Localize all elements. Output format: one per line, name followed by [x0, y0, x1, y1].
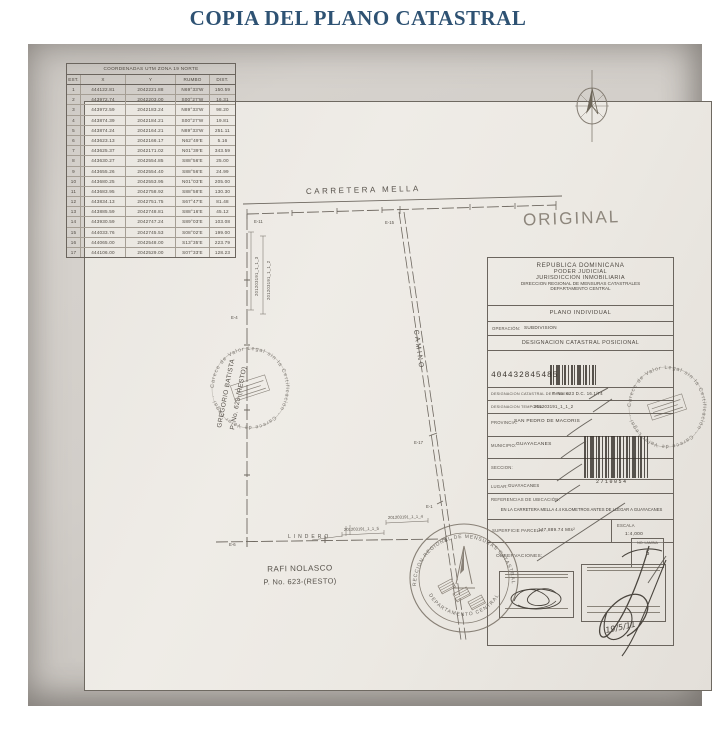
- superficie-value: 147,889.74 Mts²: [538, 527, 575, 532]
- table-row: 14443930.592042747.24S89°03'E103.08: [67, 216, 235, 226]
- table-cell: 2042554.40: [126, 167, 176, 176]
- table-cell: N62°49'E: [176, 136, 210, 145]
- table-row: 11443683.952042758.92S88°58'E130.30: [67, 186, 235, 196]
- table-row: 9443655.262042554.40S88°56'E24.99: [67, 166, 235, 176]
- table-row: 6443623.132042166.17N62°49'E5.16: [67, 135, 235, 145]
- table-cell: 444106.00: [81, 248, 126, 257]
- table-row: 10443680.252042553.95N01°03'E205.00: [67, 176, 235, 186]
- barcode-row: 404432845485: [488, 351, 673, 388]
- table-cell: 2042748.81: [126, 207, 176, 216]
- table-cell: 443655.26: [81, 167, 126, 176]
- table-cell: 2042164.21: [126, 126, 176, 135]
- table-cell: 10: [67, 177, 81, 186]
- table-cell: N89°33'W: [176, 126, 210, 135]
- table-cell: 150.59: [210, 85, 235, 94]
- coords-table-body: 1444122.812042221.88N69°33'W150.59244397…: [67, 85, 235, 257]
- origen-row: DESIGNACION CATASTRAL DE ORIGEN: P. No. …: [488, 388, 673, 401]
- signature-caption-line: [587, 570, 660, 571]
- table-cell: 443630.27: [81, 156, 126, 165]
- barcode-large: [584, 436, 648, 478]
- table-cell: 2042758.92: [126, 187, 176, 196]
- table-row: 2443972.742042203.00S00°27'W16.31: [67, 94, 235, 104]
- table-cell: 2042751.75: [126, 197, 176, 206]
- table-cell: 2: [67, 95, 81, 104]
- original-watermark: ORIGINAL: [523, 208, 610, 231]
- table-cell: 45.12: [210, 207, 235, 216]
- table-cell: S88°58'E: [176, 187, 210, 196]
- table-cell: 443625.37: [81, 146, 126, 155]
- table-cell: 2042183.24: [126, 105, 176, 114]
- plan-type-row: PLANO INDIVIDUAL: [488, 306, 673, 322]
- provincia-value: SAN PEDRO DE MACORIS: [514, 419, 580, 424]
- header-line: DEPARTAMENTO CENTRAL: [488, 286, 673, 291]
- table-cell: 443683.95: [81, 187, 126, 196]
- table-cell: 223.79: [210, 238, 235, 247]
- table-row: 3443972.592042183.24N89°33'W98.20: [67, 104, 235, 114]
- table-cell: EST.: [67, 75, 81, 84]
- table-row: 15444033.762042745.53S08°02'E199.00: [67, 227, 235, 237]
- table-cell: 11: [67, 187, 81, 196]
- table-cell: 128.23: [210, 248, 235, 257]
- table-cell: S07°33'E: [176, 248, 210, 257]
- table-cell: 2042529.00: [126, 248, 176, 257]
- table-cell: 9: [67, 167, 81, 176]
- table-cell: 15: [67, 228, 81, 237]
- table-row: 4443874.392042184.21S00°27'W19.81: [67, 115, 235, 125]
- page: COPIA DEL PLANO CATASTRAL COORDENADAS UT…: [0, 0, 716, 739]
- table-cell: 443834.13: [81, 197, 126, 206]
- operacion-label: OPERACIÓN:: [492, 326, 520, 331]
- table-cell: 2042554.85: [126, 156, 176, 165]
- table-cell: RUMBO: [176, 75, 210, 84]
- table-row: 13443885.592042748.81S88°16'E45.12: [67, 206, 235, 216]
- designacion-title: DESIGNACION CATASTRAL POSICIONAL: [488, 340, 673, 346]
- table-cell: S00°27'W: [176, 116, 210, 125]
- table-cell: 7: [67, 146, 81, 155]
- table-row: 8443630.272042554.85S88°56'E25.00: [67, 155, 235, 165]
- table-cell: 3: [67, 105, 81, 114]
- coords-table-header: EST.XYRUMBODIST.: [67, 75, 235, 85]
- table-cell: 444033.76: [81, 228, 126, 237]
- designacion-row: DESIGNACION CATASTRAL POSICIONAL: [488, 336, 673, 351]
- table-cell: N01°03'E: [176, 177, 210, 186]
- superficie-label: SUPERFICIE PARCELA:: [492, 528, 544, 533]
- table-cell: 5.16: [210, 136, 235, 145]
- escala-label: ESCALA: [617, 523, 635, 528]
- municipio-label: MUNICIPIO:: [491, 443, 516, 448]
- table-cell: 2042171.02: [126, 146, 176, 155]
- table-row: 1444122.812042221.88N69°33'W150.59: [67, 85, 235, 94]
- table-cell: N69°33'W: [176, 85, 210, 94]
- coordinates-table: COORDENADAS UTM ZONA 19 NORTE EST.XYRUMB…: [66, 63, 236, 258]
- escala-divider: [611, 520, 612, 543]
- panel-header: REPUBLICA DOMINICANA PODER JUDICIAL JURI…: [488, 258, 673, 306]
- table-cell: Y: [126, 75, 176, 84]
- table-cell: S08°02'E: [176, 228, 210, 237]
- lugar-label: LUGAR:: [491, 484, 508, 489]
- table-cell: 5: [67, 126, 81, 135]
- table-cell: X: [81, 75, 126, 84]
- seccion-label: SECCION:: [491, 465, 513, 470]
- table-cell: 19.81: [210, 116, 235, 125]
- signature-box-right: [581, 564, 666, 622]
- table-cell: 2042221.88: [126, 85, 176, 94]
- table-cell: S88°56'E: [176, 156, 210, 165]
- table-cell: 2042553.95: [126, 177, 176, 186]
- plan-type: PLANO INDIVIDUAL: [488, 310, 673, 316]
- table-cell: 443680.25: [81, 177, 126, 186]
- table-row: 5443874.242042164.21N89°33'W251.11: [67, 125, 235, 135]
- table-cell: 2042747.24: [126, 217, 176, 226]
- table-cell: 12: [67, 197, 81, 206]
- lamina-value: 5: [632, 550, 663, 557]
- signature-name-line: [505, 608, 568, 609]
- temporal-value: 201203191_1_1_2: [534, 404, 573, 409]
- table-cell: N01°39'E: [176, 146, 210, 155]
- lugar-row: LUGAR: GUAYACANES: [488, 480, 673, 494]
- table-cell: 2042745.53: [126, 228, 176, 237]
- barcode-large-number: 2710054: [596, 479, 628, 485]
- signature-box-left: [499, 571, 574, 618]
- operacion-value: SUBDIVISION: [524, 325, 557, 330]
- table-row: 17444106.002042529.00S07°33'E128.23: [67, 247, 235, 257]
- signature-caption-line: [505, 577, 568, 578]
- table-cell: 6: [67, 136, 81, 145]
- barcode-number: 404432845485: [491, 371, 558, 380]
- table-cell: 444065.00: [81, 238, 126, 247]
- table-cell: 443930.59: [81, 217, 126, 226]
- observaciones-label: OBSERVACIONES:: [496, 554, 543, 559]
- origen-value: P. No. 623 D.C. 16.1/74: [552, 391, 603, 396]
- table-cell: S88°16'E: [176, 207, 210, 216]
- table-cell: 2042184.21: [126, 116, 176, 125]
- signature-name-line: [587, 606, 660, 607]
- table-cell: 16: [67, 238, 81, 247]
- header-line: REPUBLICA DOMINICANA: [488, 262, 673, 269]
- table-cell: 17: [67, 248, 81, 257]
- referencias-label: REFERENCIAS DE UBICACIÓN:: [491, 497, 560, 502]
- table-cell: 1: [67, 85, 81, 94]
- table-cell: 343.59: [210, 146, 235, 155]
- table-cell: 98.20: [210, 105, 235, 114]
- barcode-small: [550, 365, 598, 385]
- table-cell: 443972.59: [81, 105, 126, 114]
- page-title: COPIA DEL PLANO CATASTRAL: [0, 6, 716, 31]
- table-cell: S13°35'E: [176, 238, 210, 247]
- escala-value: 1:4,000: [625, 532, 643, 537]
- table-cell: 444122.81: [81, 85, 126, 94]
- signature-name-line: [587, 612, 660, 613]
- table-cell: 4: [67, 116, 81, 125]
- table-row: 12443834.132042751.75S67°47'E81.48: [67, 196, 235, 206]
- table-cell: 81.48: [210, 197, 235, 206]
- table-cell: 24.99: [210, 167, 235, 176]
- temporal-row: DESIGNACION TEMPORAL: 201203191_1_1_2: [488, 401, 673, 414]
- table-cell: 199.00: [210, 228, 235, 237]
- table-cell: 443623.13: [81, 136, 126, 145]
- lugar-value: GUAYACANES: [508, 483, 539, 488]
- table-cell: 2042548.00: [126, 238, 176, 247]
- table-cell: 25.00: [210, 156, 235, 165]
- table-cell: S00°27'W: [176, 95, 210, 104]
- table-row: 16444065.002042548.00S13°35'E223.79: [67, 237, 235, 247]
- table-cell: 251.11: [210, 126, 235, 135]
- table-cell: S67°47'E: [176, 197, 210, 206]
- table-cell: S88°56'E: [176, 167, 210, 176]
- signature-caption-line: [505, 574, 568, 575]
- table-cell: 14: [67, 217, 81, 226]
- info-panel: REPUBLICA DOMINICANA PODER JUDICIAL JURI…: [487, 257, 674, 646]
- operacion-row: OPERACIÓN: SUBDIVISION: [488, 322, 673, 336]
- referencias-value: EN LA CARRETERA MELLA 4.4 KILOMETROS ANT…: [490, 507, 673, 512]
- signature-caption-line: [587, 567, 660, 568]
- coordinates-table-title: COORDENADAS UTM ZONA 19 NORTE: [67, 64, 235, 75]
- table-cell: 2042203.00: [126, 95, 176, 104]
- table-cell: 443874.24: [81, 126, 126, 135]
- table-cell: DIST.: [210, 75, 235, 84]
- table-cell: 13: [67, 207, 81, 216]
- table-cell: 443972.74: [81, 95, 126, 104]
- table-cell: 205.00: [210, 177, 235, 186]
- table-cell: 130.30: [210, 187, 235, 196]
- table-cell: 103.08: [210, 217, 235, 226]
- lamina-label: NO. LAMINA: [632, 541, 663, 545]
- table-cell: 2042166.17: [126, 136, 176, 145]
- referencias-row: REFERENCIAS DE UBICACIÓN: EN LA CARRETER…: [488, 494, 673, 520]
- table-row: 7443625.372042171.02N01°39'E343.59: [67, 145, 235, 155]
- table-cell: 443885.59: [81, 207, 126, 216]
- table-cell: 8: [67, 156, 81, 165]
- municipio-value: GUAYACANES: [516, 442, 552, 447]
- table-cell: N89°33'W: [176, 105, 210, 114]
- table-cell: 443874.39: [81, 116, 126, 125]
- provincia-row: PROVINCIA: SAN PEDRO DE MACORIS: [488, 414, 673, 437]
- table-cell: 16.31: [210, 95, 235, 104]
- table-cell: S89°03'E: [176, 217, 210, 226]
